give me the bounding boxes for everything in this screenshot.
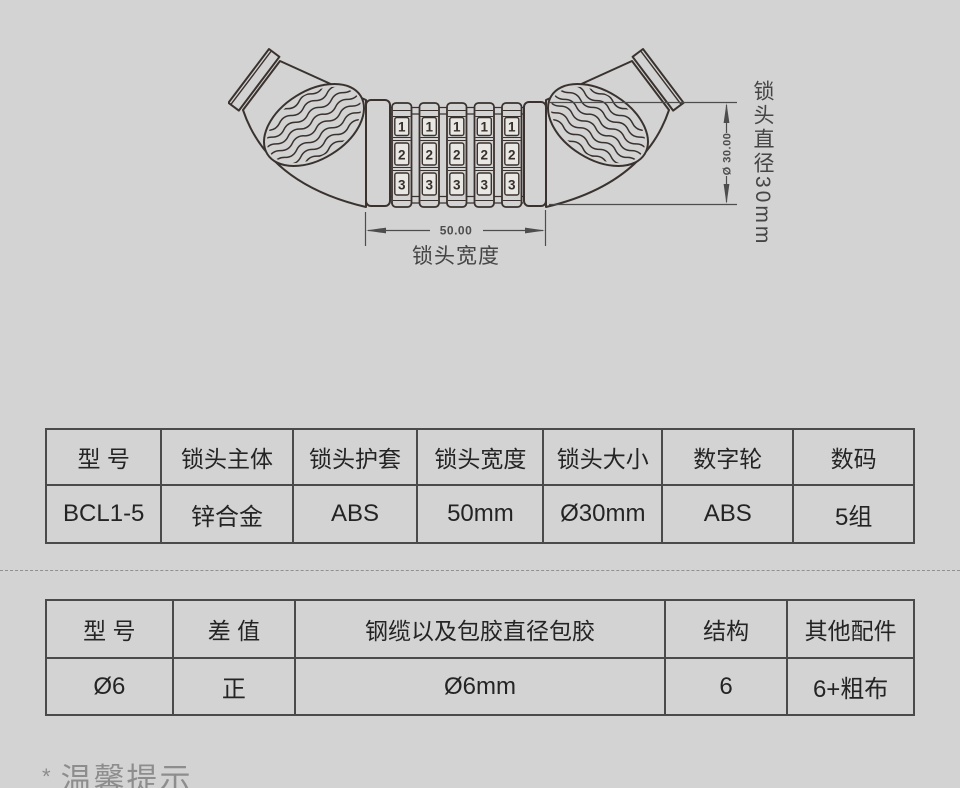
table-row: Ø6 正 Ø6mm 6 6+粗布 — [46, 658, 914, 715]
cell-model: BCL1-5 — [46, 485, 161, 543]
col-header-structure: 结构 — [665, 600, 787, 658]
lock-arm-left — [228, 49, 379, 207]
combination-dial[interactable] — [475, 103, 495, 207]
dial-digit-1: 1 — [398, 120, 406, 135]
product-spec-page: 1 2 3 50.00 锁头宽度 Ø 30.00 锁头直径30m — [0, 0, 960, 788]
col-header-sheath: 锁头护套 — [293, 429, 418, 485]
col-header-size: 锁头大小 — [543, 429, 662, 485]
cell-sheath: ABS — [293, 485, 418, 543]
diameter-dim-value: Ø 30.00 — [722, 133, 734, 176]
cell-size: Ø30mm — [543, 485, 662, 543]
cell-cable: Ø6mm — [295, 658, 665, 715]
combination-dial[interactable] — [447, 103, 467, 207]
diameter-dim-vertical-label: 锁头直径30mm — [747, 80, 777, 246]
col-header-accessories: 其他配件 — [787, 600, 914, 658]
dial-digit-3: 3 — [398, 178, 406, 193]
combination-dial[interactable] — [420, 103, 440, 207]
cell-difference: 正 — [173, 658, 295, 715]
dim-arrow-right — [525, 228, 545, 234]
table-header-row: 型 号 差 值 钢缆以及包胶直径包胶 结构 其他配件 — [46, 600, 914, 658]
dial-digit-2: 2 — [398, 148, 406, 163]
width-dim-label: 锁头宽度 — [412, 245, 500, 268]
col-header-digit-wheel: 数字轮 — [662, 429, 793, 485]
width-dim-value: 50.00 — [440, 224, 473, 238]
dim-arrow-down — [724, 184, 730, 204]
lock-left-end-block — [366, 100, 390, 206]
combination-dial[interactable] — [502, 103, 522, 207]
cell-model: Ø6 — [46, 658, 173, 715]
spec-table-lock-head: 型 号 锁头主体 锁头护套 锁头宽度 锁头大小 数字轮 数码 BCL1-5 锌合… — [45, 428, 915, 544]
cell-accessories: 6+粗布 — [787, 658, 914, 715]
lock-right-end-block — [524, 102, 546, 206]
warm-tips-heading: *温馨提示 — [42, 754, 193, 788]
cell-structure: 6 — [665, 658, 787, 715]
dim-arrow-up — [724, 103, 730, 123]
cell-digits: 5组 — [793, 485, 914, 543]
table-row: BCL1-5 锌合金 ABS 50mm Ø30mm ABS 5组 — [46, 485, 914, 543]
col-header-difference: 差 值 — [173, 600, 295, 658]
lock-arm-right — [532, 49, 683, 207]
cell-width: 50mm — [417, 485, 543, 543]
table-header-row: 型 号 锁头主体 锁头护套 锁头宽度 锁头大小 数字轮 数码 — [46, 429, 914, 485]
dashed-separator — [0, 570, 960, 571]
spec-table-cable: 型 号 差 值 钢缆以及包胶直径包胶 结构 其他配件 Ø6 正 Ø6mm 6 6… — [45, 599, 915, 716]
col-header-body: 锁头主体 — [161, 429, 292, 485]
cell-digit-wheel: ABS — [662, 485, 793, 543]
col-header-cable: 钢缆以及包胶直径包胶 — [295, 600, 665, 658]
col-header-digits: 数码 — [793, 429, 914, 485]
warm-tips-text: 温馨提示 — [61, 762, 193, 788]
asterisk-marker: * — [42, 764, 51, 788]
lock-technical-drawing: 1 2 3 50.00 锁头宽度 Ø 30.00 — [228, 40, 780, 268]
col-header-width: 锁头宽度 — [417, 429, 543, 485]
combination-dial[interactable]: 1 2 3 — [392, 103, 412, 207]
cell-body: 锌合金 — [161, 485, 292, 543]
col-header-model: 型 号 — [46, 600, 173, 658]
col-header-model: 型 号 — [46, 429, 161, 485]
dim-arrow-left — [366, 228, 386, 234]
